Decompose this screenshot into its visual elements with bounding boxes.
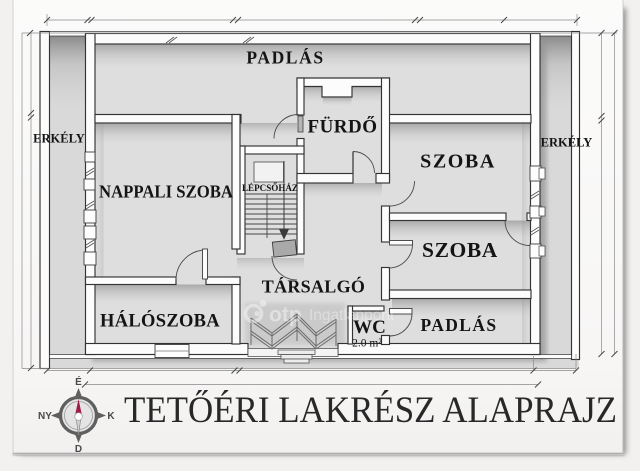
svg-text:SZOBA: SZOBA <box>420 151 496 173</box>
svg-text:FÜRDŐ: FÜRDŐ <box>307 116 377 138</box>
svg-text:2.0 m²: 2.0 m² <box>352 338 382 350</box>
svg-text:otp: otp <box>269 304 302 327</box>
svg-text:PADLÁS: PADLÁS <box>420 315 497 335</box>
svg-text:K: K <box>107 411 115 422</box>
svg-text:HÁLÓSZOBA: HÁLÓSZOBA <box>100 310 220 332</box>
svg-text:NY: NY <box>38 411 52 422</box>
svg-text:WC: WC <box>353 317 386 338</box>
svg-text:TETŐÉRI LAKRÉSZ ALAPRAJZ: TETŐÉRI LAKRÉSZ ALAPRAJZ <box>124 389 617 431</box>
svg-text:PADLÁS: PADLÁS <box>246 48 324 68</box>
svg-text:TÁRSALGÓ: TÁRSALGÓ <box>262 276 365 297</box>
svg-text:D: D <box>75 444 82 455</box>
svg-text:ERKÉLY: ERKÉLY <box>541 136 593 150</box>
svg-text:NAPPALI SZOBA: NAPPALI SZOBA <box>99 182 233 202</box>
svg-text:LÉPCSŐHÁZ: LÉPCSŐHÁZ <box>242 182 298 194</box>
svg-text:É: É <box>75 375 82 388</box>
svg-text:SZOBA: SZOBA <box>422 238 498 262</box>
svg-text:ERKÉLY: ERKÉLY <box>33 132 85 146</box>
